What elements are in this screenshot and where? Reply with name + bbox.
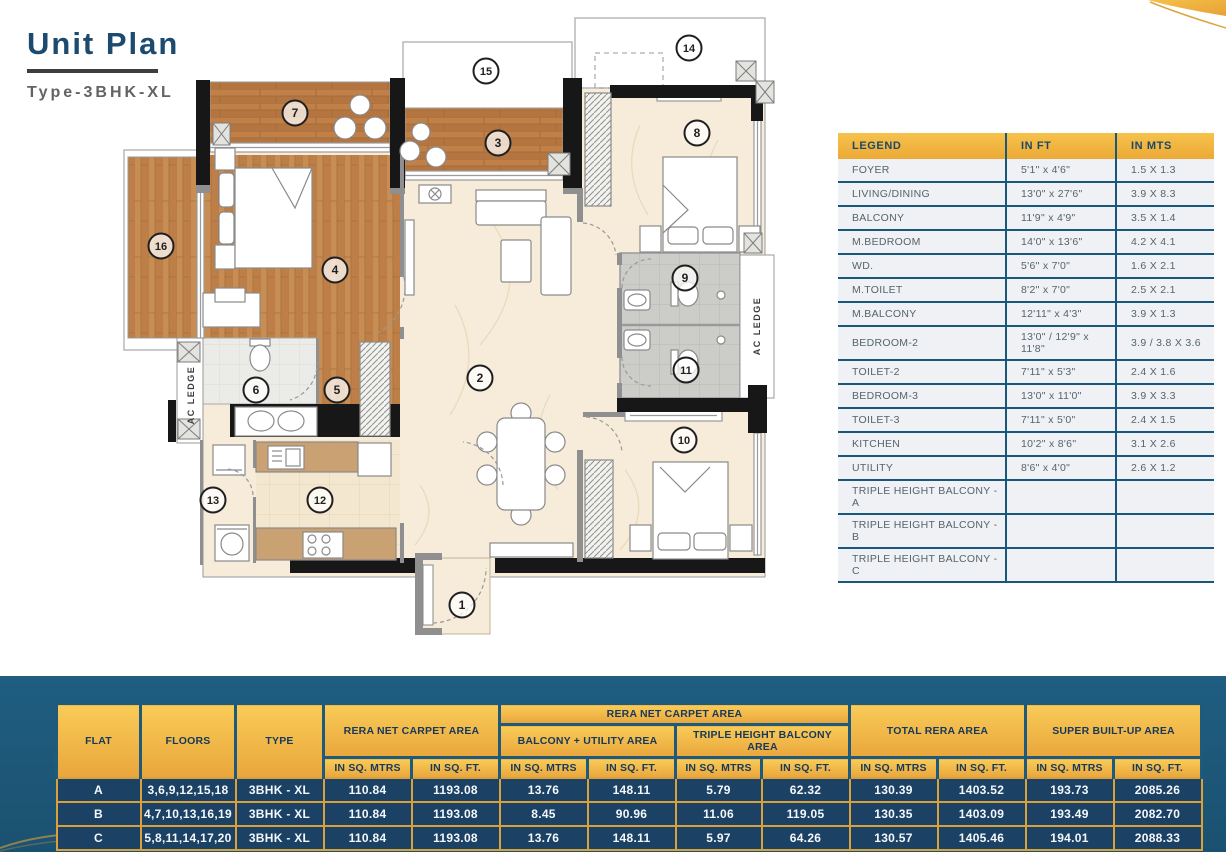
kitchen-fridge <box>358 443 391 476</box>
area-value-cell: 1193.08 <box>412 802 500 826</box>
legend-row: M.BEDROOM14'0" x 13'6"4.2 X 4.1 <box>838 230 1214 254</box>
legend-room-name: TRIPLE HEIGHT BALCONY - B <box>838 514 1006 548</box>
room-marker-number: 4 <box>332 263 339 277</box>
col-header-sq-ft: IN SQ. FT. <box>762 758 850 779</box>
flat-cell: C <box>57 826 141 850</box>
dining-chair <box>545 432 565 452</box>
room-marker-triple-height-balcony: 14 <box>677 36 702 61</box>
wd-wardrobe <box>360 342 390 436</box>
legend-row: TRIPLE HEIGHT BALCONY - B <box>838 514 1214 548</box>
legend-room-name: TRIPLE HEIGHT BALCONY - C <box>838 548 1006 582</box>
dining-chair <box>545 465 565 485</box>
legend-room-name: BEDROOM-2 <box>838 326 1006 360</box>
room-marker-foyer: 1 <box>450 593 475 618</box>
area-value-cell: 130.39 <box>850 778 938 802</box>
toilet3-shower <box>717 336 725 344</box>
area-value-cell: 119.05 <box>762 802 850 826</box>
col-header-sq-mtrs: IN SQ. MTRS <box>676 758 762 779</box>
room-marker-bedroom-2: 8 <box>685 121 710 146</box>
floors-cell: 4,7,10,13,16,19 <box>141 802 236 826</box>
m-toilet-vanity <box>235 407 317 436</box>
legend-dim-ft: 13'0" x 27'6" <box>1006 182 1116 206</box>
col-header-sq-ft: IN SQ. FT. <box>588 758 676 779</box>
legend-row: BEDROOM-313'0" x 11'0"3.9 X 3.3 <box>838 384 1214 408</box>
legend-dim-ft: 11'9" x 4'9" <box>1006 206 1116 230</box>
room-marker-number: 5 <box>334 383 341 397</box>
area-value-cell: 194.01 <box>1026 826 1114 850</box>
area-value-cell: 148.11 <box>588 778 676 802</box>
toilet2-shower <box>717 291 725 299</box>
unit-plan-page: Unit Plan Type-3BHK-XL <box>0 0 1226 852</box>
room-marker-number: 3 <box>495 136 502 150</box>
legend-dim-mts: 1.6 X 2.1 <box>1116 254 1214 278</box>
legend-dim-ft <box>1006 514 1116 548</box>
m-bedroom-stool <box>215 288 245 302</box>
legend-dim-mts: 2.5 X 2.1 <box>1116 278 1214 302</box>
room-marker-triple-height-balcony: 15 <box>474 59 499 84</box>
m-bed-side-table <box>215 245 235 269</box>
legend-row: TRIPLE HEIGHT BALCONY - A <box>838 480 1214 514</box>
legend-dim-mts: 3.9 X 1.3 <box>1116 302 1214 326</box>
legend-dim-ft: 14'0" x 13'6" <box>1006 230 1116 254</box>
balcony3-chair <box>400 141 420 161</box>
ac-ledge-label-left: AC LEDGE <box>186 366 196 425</box>
col-header-rera-net-carpet-group: RERA NET CARPET AREA <box>500 704 850 725</box>
legend-dim-mts <box>1116 480 1214 514</box>
m-toilet-sink <box>278 411 304 431</box>
living-chaise <box>541 217 571 295</box>
area-value-cell: 13.76 <box>500 826 588 850</box>
col-header-sq-mtrs: IN SQ. MTRS <box>850 758 938 779</box>
flat-cell: A <box>57 778 141 802</box>
legend-dim-ft: 12'11" x 4'3" <box>1006 302 1116 326</box>
balcony3-table <box>412 123 430 141</box>
col-header-sq-mtrs: IN SQ. MTRS <box>1026 758 1114 779</box>
legend-row: FOYER5'1" x 4'6"1.5 X 1.3 <box>838 159 1214 182</box>
legend-room-name: BALCONY <box>838 206 1006 230</box>
area-row-flat-A: A3,6,9,12,15,183BHK - XL110.841193.0813.… <box>57 778 1202 802</box>
legend-row: TOILET-37'11" x 5'0"2.4 X 1.5 <box>838 408 1214 432</box>
legend-dim-ft: 8'2" x 7'0" <box>1006 278 1116 302</box>
dining-table <box>497 418 545 510</box>
area-value-cell: 90.96 <box>588 802 676 826</box>
col-header-super-built-up: SUPER BUILT-UP AREA <box>1026 704 1202 758</box>
legend-room-name: TRIPLE HEIGHT BALCONY - A <box>838 480 1006 514</box>
foyer-shelf <box>490 543 573 557</box>
room-marker-wd: 5 <box>325 378 350 403</box>
m-toilet-wc <box>250 345 270 371</box>
area-value-cell: 193.73 <box>1026 778 1114 802</box>
legend-room-name: TOILET-3 <box>838 408 1006 432</box>
room-marker-triple-height-balcony: 16 <box>149 234 174 259</box>
legend-room-name: WD. <box>838 254 1006 278</box>
legend-dim-ft: 5'6" x 7'0" <box>1006 254 1116 278</box>
legend-table-body: FOYER5'1" x 4'6"1.5 X 1.3LIVING/DINING13… <box>838 159 1214 582</box>
col-header-flat: FLAT <box>57 704 141 779</box>
legend-dim-ft: 13'0" x 11'0" <box>1006 384 1116 408</box>
legend-dim-mts: 2.4 X 1.6 <box>1116 360 1214 384</box>
bedroom3-pillow <box>694 533 726 550</box>
legend-dim-mts: 3.5 X 1.4 <box>1116 206 1214 230</box>
room-marker-kitchen: 12 <box>308 488 333 513</box>
room-marker-m-balcony: 7 <box>283 101 308 126</box>
legend-room-name: FOYER <box>838 159 1006 182</box>
room-marker-number: 2 <box>477 371 484 385</box>
legend-room-name: M.BALCONY <box>838 302 1006 326</box>
area-value-cell: 110.84 <box>324 802 412 826</box>
legend-header-in-ft: IN FT <box>1006 133 1116 159</box>
legend-row: M.BALCONY12'11" x 4'3"3.9 X 1.3 <box>838 302 1214 326</box>
room-marker-balcony: 3 <box>486 131 511 156</box>
living-tv-console <box>405 220 414 295</box>
area-value-cell: 1403.09 <box>938 802 1026 826</box>
room-marker-number: 14 <box>683 43 696 55</box>
legend-room-name: M.BEDROOM <box>838 230 1006 254</box>
living-sofa-seat <box>476 201 546 225</box>
legend-row: WD.5'6" x 7'0"1.6 X 2.1 <box>838 254 1214 278</box>
legend-dim-mts: 3.9 / 3.8 X 3.6 <box>1116 326 1214 360</box>
area-value-cell: 193.49 <box>1026 802 1114 826</box>
toilet2-basin-bowl <box>628 294 646 306</box>
room-marker-m-bedroom: 4 <box>323 258 348 283</box>
room-marker-number: 6 <box>253 383 260 397</box>
legend-dim-ft: 10'2" x 8'6" <box>1006 432 1116 456</box>
bedroom3-side-table <box>630 525 651 551</box>
area-value-cell: 1193.08 <box>412 826 500 850</box>
area-value-cell: 2085.26 <box>1114 778 1202 802</box>
area-value-cell: 62.32 <box>762 778 850 802</box>
dining-chair <box>477 432 497 452</box>
m-bed-side-table <box>215 148 235 170</box>
legend-dim-ft <box>1006 480 1116 514</box>
type-cell: 3BHK - XL <box>236 826 324 850</box>
col-header-sq-ft: IN SQ. FT. <box>412 758 500 779</box>
area-value-cell: 148.11 <box>588 826 676 850</box>
area-value-cell: 8.45 <box>500 802 588 826</box>
bedroom2-pillow <box>668 227 698 244</box>
floors-cell: 5,8,11,14,17,20 <box>141 826 236 850</box>
floors-cell: 3,6,9,12,15,18 <box>141 778 236 802</box>
bedroom2-pillow <box>703 227 733 244</box>
col-header-type: TYPE <box>236 704 324 779</box>
area-row-flat-B: B4,7,10,13,16,193BHK - XL110.841193.088.… <box>57 802 1202 826</box>
room-marker-bedroom-3: 10 <box>672 428 697 453</box>
area-value-cell: 5.79 <box>676 778 762 802</box>
legend-dim-ft: 13'0" / 12'9" x 11'8" <box>1006 326 1116 360</box>
legend-header-in-mts: IN MTS <box>1116 133 1214 159</box>
legend-row: TOILET-27'11" x 5'3"2.4 X 1.6 <box>838 360 1214 384</box>
bedroom3-pillow <box>658 533 690 550</box>
legend-dim-mts: 3.9 X 3.3 <box>1116 384 1214 408</box>
area-value-cell: 1193.08 <box>412 778 500 802</box>
area-value-cell: 110.84 <box>324 826 412 850</box>
area-value-cell: 11.06 <box>676 802 762 826</box>
legend-room-name: BEDROOM-3 <box>838 384 1006 408</box>
legend-row: UTILITY8'6" x 4'0"2.6 X 1.2 <box>838 456 1214 480</box>
m-bed-pillow <box>219 173 234 207</box>
legend-row: BALCONY11'9" x 4'9"3.5 X 1.4 <box>838 206 1214 230</box>
bedroom2-side-table <box>640 226 661 252</box>
flat-cell: B <box>57 802 141 826</box>
legend-dim-mts: 4.2 X 4.1 <box>1116 230 1214 254</box>
bedroom3-side-table <box>730 525 752 551</box>
room-marker-toilet-2: 9 <box>673 266 698 291</box>
ac-ledge-label-right: AC LEDGE <box>752 297 762 356</box>
legend-dim-ft: 8'6" x 4'0" <box>1006 456 1116 480</box>
bedroom2-wardrobe <box>585 93 611 206</box>
legend-row: TRIPLE HEIGHT BALCONY - C <box>838 548 1214 582</box>
area-value-cell: 2088.33 <box>1114 826 1202 850</box>
legend-dim-ft <box>1006 548 1116 582</box>
balcony3-chair <box>426 147 446 167</box>
room-marker-number: 1 <box>459 598 466 612</box>
col-header-sq-ft: IN SQ. FT. <box>1114 758 1202 779</box>
legend-dim-ft: 5'1" x 4'6" <box>1006 159 1116 182</box>
area-table-body: A3,6,9,12,15,183BHK - XL110.841193.0813.… <box>57 778 1202 850</box>
bedroom3-wardrobe <box>585 460 613 558</box>
legend-room-name: M.TOILET <box>838 278 1006 302</box>
legend-dim-mts: 1.5 X 1.3 <box>1116 159 1214 182</box>
col-header-sq-ft: IN SQ. FT. <box>938 758 1026 779</box>
col-header-total-rera: TOTAL RERA AREA <box>850 704 1026 758</box>
room-marker-number: 8 <box>694 126 701 140</box>
m-bed-mattress <box>235 168 312 268</box>
area-statement-table: FLAT FLOORS TYPE RERA NET CARPET AREA RE… <box>55 702 1203 851</box>
legend-dim-ft: 7'11" x 5'0" <box>1006 408 1116 432</box>
legend-room-name: KITCHEN <box>838 432 1006 456</box>
legend-dim-mts <box>1116 548 1214 582</box>
area-value-cell: 13.76 <box>500 778 588 802</box>
balcony7-chair <box>334 117 356 139</box>
col-header-sq-mtrs: IN SQ. MTRS <box>500 758 588 779</box>
floor-plan: AC LEDGE AC LEDGE 1234567891011121314151… <box>120 5 780 635</box>
m-toilet-sink <box>248 411 274 431</box>
room-marker-number: 7 <box>292 106 299 120</box>
balcony7-table <box>350 95 370 115</box>
legend-dim-mts: 2.6 X 1.2 <box>1116 456 1214 480</box>
legend-table: LEGEND IN FT IN MTS FOYER5'1" x 4'6"1.5 … <box>838 133 1214 583</box>
legend-row: LIVING/DINING13'0" x 27'6"3.9 X 8.3 <box>838 182 1214 206</box>
room-marker-utility: 13 <box>201 488 226 513</box>
col-header-floors: FLOORS <box>141 704 236 779</box>
col-header-balcony-utility: BALCONY + UTILITY AREA <box>500 725 676 758</box>
legend-header-legend: LEGEND <box>838 133 1006 159</box>
area-value-cell: 130.35 <box>850 802 938 826</box>
living-sofa-back <box>476 190 546 201</box>
m-bed-pillow <box>219 212 234 244</box>
room-balcony <box>405 108 563 175</box>
legend-room-name: LIVING/DINING <box>838 182 1006 206</box>
main-door-leaf <box>423 565 433 625</box>
room-marker-number: 16 <box>155 241 167 253</box>
type-cell: 3BHK - XL <box>236 778 324 802</box>
legend-dim-mts: 3.9 X 8.3 <box>1116 182 1214 206</box>
gold-swoosh-top-right <box>1020 0 1226 80</box>
col-header-rera-net-carpet: RERA NET CARPET AREA <box>324 704 500 758</box>
area-value-cell: 130.57 <box>850 826 938 850</box>
area-value-cell: 110.84 <box>324 778 412 802</box>
room-marker-m-toilet: 6 <box>244 378 269 403</box>
area-value-cell: 1405.46 <box>938 826 1026 850</box>
room-marker-number: 9 <box>682 271 689 285</box>
living-coffee-table <box>501 240 531 282</box>
area-value-cell: 64.26 <box>762 826 850 850</box>
legend-row: M.TOILET8'2" x 7'0"2.5 X 2.1 <box>838 278 1214 302</box>
legend-dim-mts: 3.1 X 2.6 <box>1116 432 1214 456</box>
area-row-flat-C: C5,8,11,14,17,203BHK - XL110.841193.0813… <box>57 826 1202 850</box>
type-cell: 3BHK - XL <box>236 802 324 826</box>
area-value-cell: 5.97 <box>676 826 762 850</box>
room-marker-number: 15 <box>480 66 492 78</box>
legend-row: KITCHEN10'2" x 8'6"3.1 X 2.6 <box>838 432 1214 456</box>
room-marker-number: 10 <box>678 435 690 447</box>
area-value-cell: 1403.52 <box>938 778 1026 802</box>
legend-room-name: TOILET-2 <box>838 360 1006 384</box>
col-header-sq-mtrs: IN SQ. MTRS <box>324 758 412 779</box>
area-value-cell: 2082.70 <box>1114 802 1202 826</box>
room-marker-number: 11 <box>680 365 692 377</box>
room-marker-living-dining: 2 <box>468 366 493 391</box>
legend-room-name: UTILITY <box>838 456 1006 480</box>
legend-row: BEDROOM-213'0" / 12'9" x 11'8"3.9 / 3.8 … <box>838 326 1214 360</box>
legend-dim-ft: 7'11" x 5'3" <box>1006 360 1116 384</box>
room-marker-toilet-3: 11 <box>674 358 699 383</box>
room-marker-number: 12 <box>314 495 326 507</box>
balcony7-chair <box>364 117 386 139</box>
legend-dim-mts <box>1116 514 1214 548</box>
kitchen-sink-basin <box>286 449 300 466</box>
legend-dim-mts: 2.4 X 1.5 <box>1116 408 1214 432</box>
room-marker-number: 13 <box>207 495 219 507</box>
col-header-triple-height-balcony: TRIPLE HEIGHT BALCONY AREA <box>676 725 850 758</box>
toilet3-basin-bowl <box>628 334 646 346</box>
dining-chair <box>477 465 497 485</box>
